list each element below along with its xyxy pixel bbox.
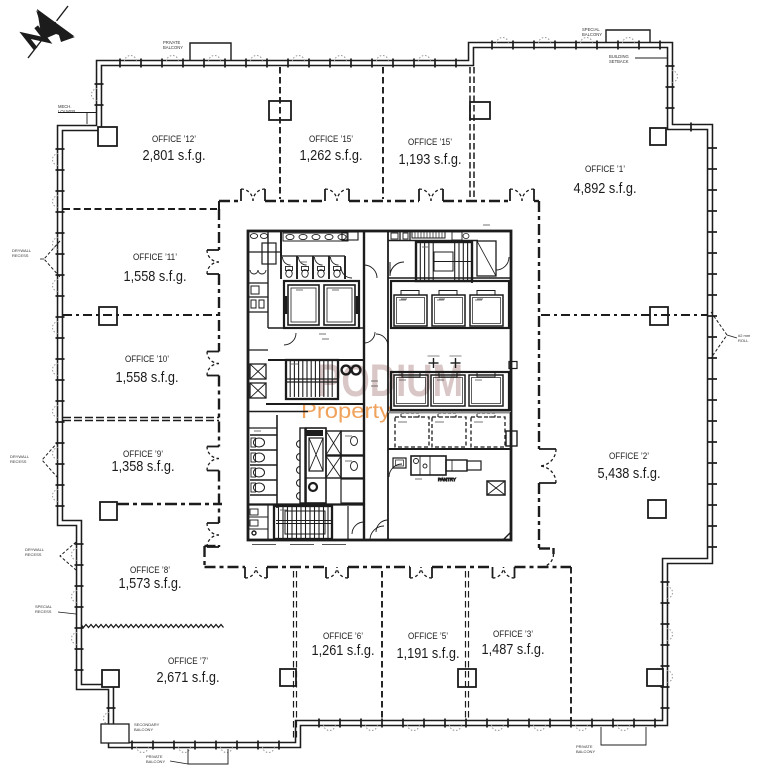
svg-text:OFFICE ’3’: OFFICE ’3’ <box>493 629 533 639</box>
svg-text:OFFICE ’9’: OFFICE ’9’ <box>123 449 163 459</box>
svg-text:RECESS: RECESS <box>12 253 29 258</box>
svg-text:4,892 s.f.g.: 4,892 s.f.g. <box>574 181 637 197</box>
svg-text:1,558 s.f.g.: 1,558 s.f.g. <box>116 370 179 386</box>
svg-text:1,487 s.f.g.: 1,487 s.f.g. <box>482 642 545 658</box>
svg-text:1,191 s.f.g.: 1,191 s.f.g. <box>397 646 460 662</box>
svg-text:OFFICE ’6’: OFFICE ’6’ <box>323 631 363 641</box>
svg-text:BALCONY: BALCONY <box>582 32 602 37</box>
svg-text:BALCONY: BALCONY <box>134 727 153 732</box>
svg-text:OFFICE ’8’: OFFICE ’8’ <box>130 565 170 575</box>
svg-text:RECESS: RECESS <box>35 609 52 614</box>
svg-text:1,261 s.f.g.: 1,261 s.f.g. <box>312 643 375 659</box>
svg-text:RECESS: RECESS <box>10 459 27 464</box>
svg-text:2,801 s.f.g.: 2,801 s.f.g. <box>143 148 206 164</box>
svg-text:OFFICE ’5’: OFFICE ’5’ <box>408 631 448 641</box>
svg-text:OFFICE ’2’: OFFICE ’2’ <box>609 451 649 461</box>
svg-text:5,438 s.f.g.: 5,438 s.f.g. <box>598 466 661 482</box>
svg-text:OFFICE ’11’: OFFICE ’11’ <box>133 252 177 262</box>
svg-text:1,573 s.f.g.: 1,573 s.f.g. <box>119 576 182 592</box>
svg-text:BALCONY: BALCONY <box>576 749 595 754</box>
svg-text:PANTRY: PANTRY <box>438 477 456 482</box>
svg-text:OFFICE ’7’: OFFICE ’7’ <box>168 656 208 666</box>
svg-text:1,358 s.f.g.: 1,358 s.f.g. <box>112 459 175 475</box>
svg-text:OFFICE ’15’: OFFICE ’15’ <box>309 134 353 144</box>
svg-text:1,193 s.f.g.: 1,193 s.f.g. <box>399 152 462 168</box>
svg-text:BALCONY: BALCONY <box>146 759 165 764</box>
svg-text:ROLL: ROLL <box>738 338 749 343</box>
svg-text:OFFICE ’15’: OFFICE ’15’ <box>408 137 452 147</box>
svg-text:2,671 s.f.g.: 2,671 s.f.g. <box>157 670 220 686</box>
svg-text:SETBACK: SETBACK <box>609 59 629 64</box>
svg-text:RECESS: RECESS <box>25 552 42 557</box>
svg-text:LOUVER: LOUVER <box>58 109 75 114</box>
svg-text:OFFICE ’10’: OFFICE ’10’ <box>125 354 169 364</box>
svg-text:1,558 s.f.g.: 1,558 s.f.g. <box>124 269 187 285</box>
svg-text:OFFICE ’12’: OFFICE ’12’ <box>152 134 196 144</box>
svg-text:1,262 s.f.g.: 1,262 s.f.g. <box>300 148 363 164</box>
svg-text:OFFICE ’1’: OFFICE ’1’ <box>585 164 625 174</box>
svg-text:BALCONY: BALCONY <box>163 45 183 50</box>
